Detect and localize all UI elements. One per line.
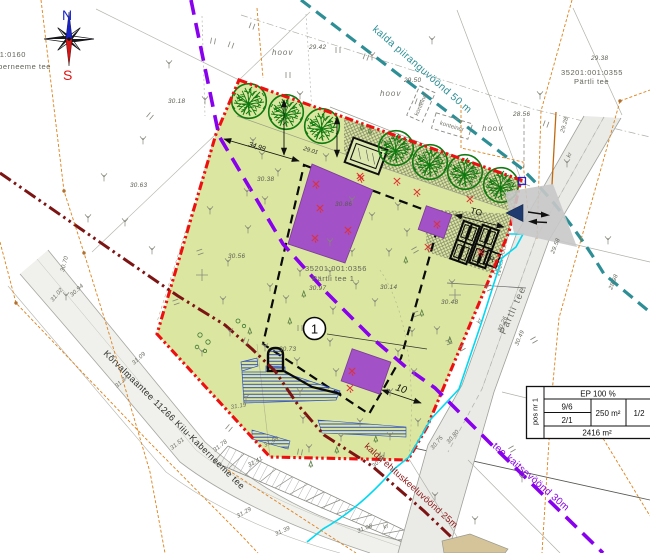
svg-text:pos nr 1: pos nr 1: [531, 398, 540, 425]
svg-text:35201:001:0356: 35201:001:0356: [305, 264, 367, 273]
svg-text:30.73: 30.73: [279, 346, 296, 353]
svg-text:35201:001:0160: 35201:001:0160: [0, 50, 26, 59]
svg-text:N: N: [62, 7, 72, 23]
svg-text:hoov: hoov: [482, 124, 503, 133]
svg-text:30.86: 30.86: [335, 201, 352, 208]
svg-text:29.42: 29.42: [308, 44, 326, 51]
svg-text:2/1: 2/1: [561, 416, 573, 425]
svg-text:30.63: 30.63: [130, 182, 147, 189]
svg-text:9/6: 9/6: [561, 403, 573, 412]
svg-text:Pärtli tee 1 .: Pärtli tee 1 .: [312, 274, 360, 283]
svg-text:250 m²: 250 m²: [596, 409, 621, 418]
svg-text:30.38: 30.38: [257, 176, 274, 183]
svg-text:29.50: 29.50: [403, 77, 421, 84]
svg-text:30.18: 30.18: [168, 98, 185, 105]
svg-text:28.56: 28.56: [512, 111, 530, 118]
svg-text:2416 m²: 2416 m²: [582, 429, 612, 438]
svg-text:1/2: 1/2: [633, 409, 645, 418]
svg-text:Kaberneeme tee: Kaberneeme tee: [0, 62, 51, 71]
svg-text:30.97: 30.97: [309, 285, 326, 292]
svg-text:1: 1: [311, 322, 318, 337]
svg-text:29.38: 29.38: [590, 55, 608, 62]
svg-text:30.14: 30.14: [380, 284, 397, 291]
svg-text:EP 100 %: EP 100 %: [580, 390, 615, 399]
svg-text:35201:001:0355: 35201:001:0355: [561, 68, 623, 77]
svg-text:hoov: hoov: [380, 89, 401, 98]
svg-text:S: S: [63, 67, 72, 83]
svg-text:hoov: hoov: [272, 48, 293, 57]
svg-text:Pärtli tee: Pärtli tee: [574, 77, 609, 86]
svg-text:30.48: 30.48: [441, 299, 458, 306]
